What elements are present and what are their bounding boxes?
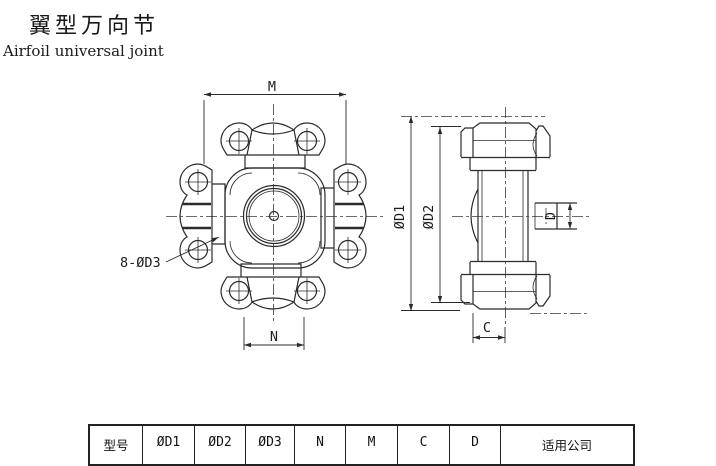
spec-table: 型号 ØD1 ØD2 ØD3 N M C D 适用公司 [88,424,635,466]
center-hole [270,212,279,221]
bore-circle-inner [247,189,302,244]
col-header-d3: ØD3 [245,426,294,464]
flange [470,262,536,276]
arrowhead [409,304,413,311]
right-bearing-cap [321,164,366,268]
dimension-C: C [473,313,505,343]
main-block [473,275,536,309]
bottom-bearing-cap [221,264,325,309]
col-header-model: 型号 [90,426,142,464]
col-header-d1: ØD1 [142,426,194,464]
dim-label-n: N [270,329,278,345]
right-tab [536,126,550,157]
dim-label-d: D [543,212,559,220]
journal-arc [471,189,478,243]
main-block [473,123,536,157]
bore-circle-outer [244,186,305,247]
left-tab [461,275,473,304]
dim-label-c: C [483,320,491,336]
body-tube [471,170,528,262]
flange [470,157,536,171]
arrowhead [568,222,572,229]
dim-label-m: M [268,79,276,95]
col-header-d2: ØD2 [194,426,245,464]
arrowhead [244,343,251,347]
right-tab [536,275,550,306]
arrowhead [438,296,442,303]
col-header-d: D [449,426,500,464]
drawing-sheet: { "page": { "background": "#ffffff", "li… [0,0,716,446]
technical-drawing: M N 8-ØD3 [0,0,716,446]
arrowhead [498,335,505,339]
arrowhead [204,92,211,96]
body-outline [225,168,325,268]
arrowhead [339,92,346,96]
dim-label-d1: ØD1 [392,205,408,229]
callout-label-8-d3: 8-ØD3 [120,255,161,271]
front-view: M N 8-ØD3 [120,79,384,350]
side-view: ØD1 ØD2 D C [392,107,590,343]
bore-circle-seat [249,191,299,241]
dimension-D2: ØD2 [421,127,470,304]
dimension-N: N [244,317,304,350]
dim-label-d2: ØD2 [421,205,437,229]
arrowhead [568,203,572,210]
col-header-c: C [397,426,449,464]
col-header-m: M [345,426,397,464]
top-bearing-cap [221,123,325,168]
col-header-company: 适用公司 [500,426,633,464]
arrowhead [473,335,480,339]
left-tab [461,128,473,157]
col-header-n: N [294,426,345,464]
arrowhead [409,116,413,123]
arrowhead [297,343,304,347]
arrowhead [438,127,442,134]
